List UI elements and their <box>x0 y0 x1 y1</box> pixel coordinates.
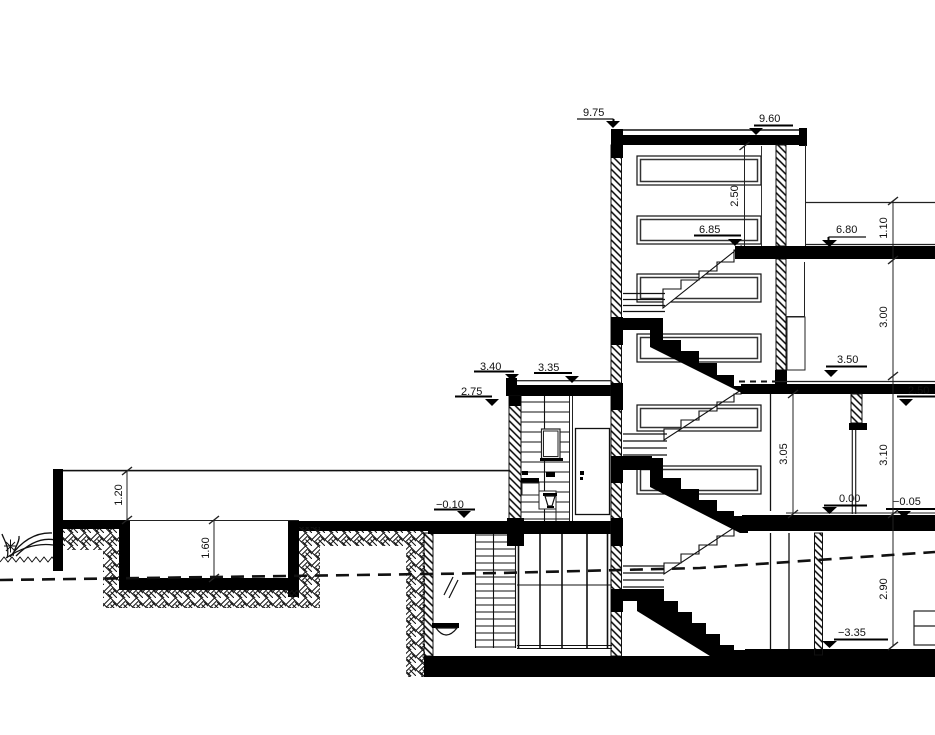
svg-text:3.10: 3.10 <box>878 444 890 465</box>
svg-text:6.80: 6.80 <box>836 224 857 236</box>
svg-text:1.60: 1.60 <box>200 537 212 558</box>
svg-text:6.85: 6.85 <box>699 224 720 236</box>
svg-text:3.05: 3.05 <box>778 443 790 464</box>
svg-text:3.00: 3.00 <box>878 306 890 327</box>
svg-text:1.20: 1.20 <box>113 484 125 505</box>
svg-text:0.00: 0.00 <box>839 493 860 505</box>
svg-text:1.10: 1.10 <box>878 217 890 238</box>
svg-text:3.50: 3.50 <box>837 354 858 366</box>
svg-text:9.75: 9.75 <box>583 107 604 119</box>
svg-text:2.90: 2.90 <box>878 578 890 599</box>
svg-text:2.50: 2.50 <box>908 385 929 397</box>
svg-text:9.60: 9.60 <box>759 113 780 125</box>
svg-text:2.50: 2.50 <box>729 185 741 206</box>
svg-text:−3.35: −3.35 <box>838 627 866 639</box>
svg-text:−0.05: −0.05 <box>893 496 921 508</box>
